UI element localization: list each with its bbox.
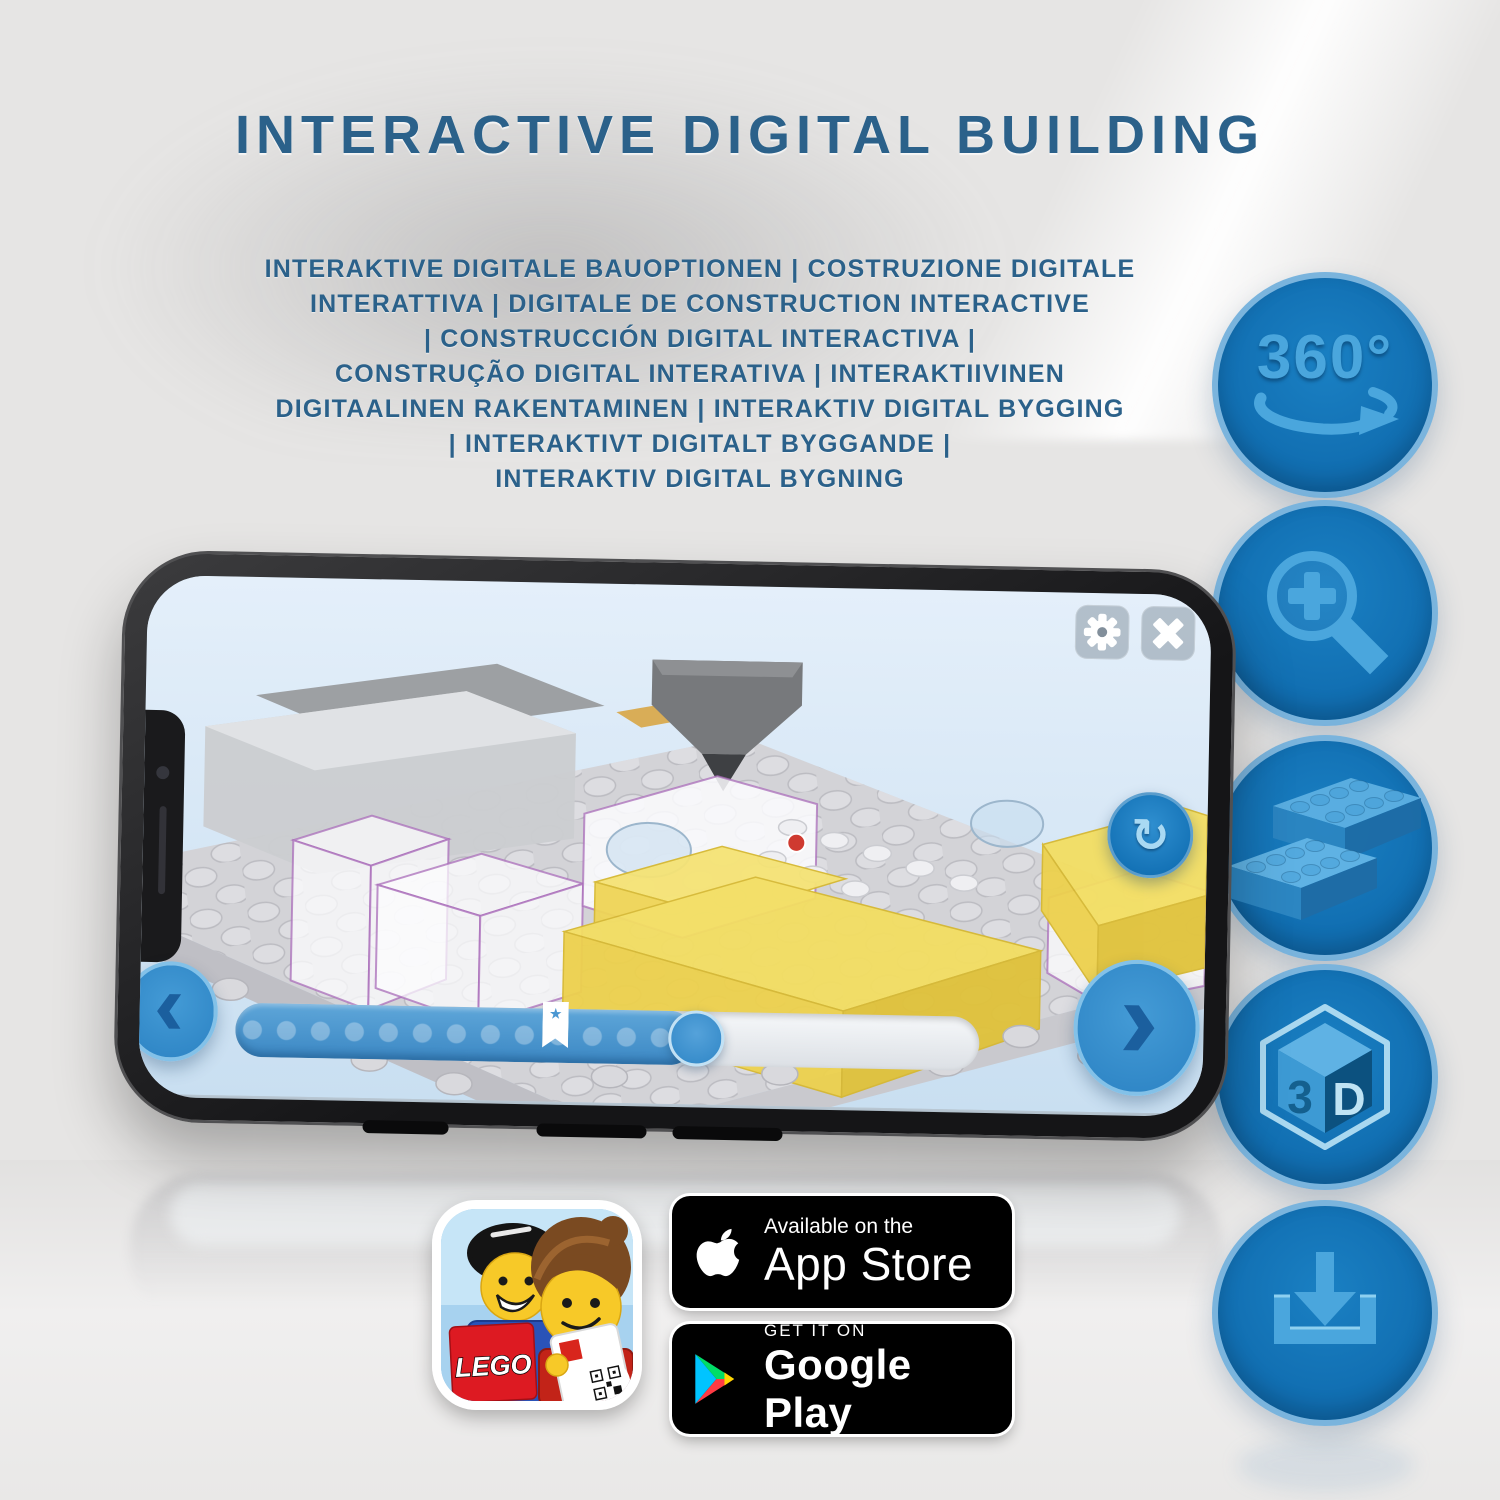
google-play-name: Google Play bbox=[764, 1341, 1012, 1437]
google-play-badge[interactable]: GET IT ON Google Play bbox=[672, 1324, 1012, 1434]
zoom-in-icon bbox=[1250, 538, 1400, 688]
gear-icon bbox=[1082, 612, 1123, 653]
feature-brick bbox=[1212, 735, 1438, 961]
360-label: 360° bbox=[1249, 330, 1401, 386]
settings-button[interactable] bbox=[1075, 605, 1130, 660]
subtitle-block: INTERAKTIVE DIGITALE BAUOPTIONEN | COSTR… bbox=[90, 252, 1310, 497]
progress-thumb[interactable] bbox=[668, 1010, 725, 1067]
lego-app-icon[interactable]: LEGO bbox=[432, 1200, 642, 1410]
subtitle-line: INTERAKTIV DIGITAL BYGNING bbox=[90, 462, 1310, 497]
app-store-name: App Store bbox=[764, 1239, 973, 1289]
subtitle-line: DIGITAALINEN RAKENTAMINEN | INTERAKTIV D… bbox=[90, 392, 1310, 427]
cube-3-label: 3 bbox=[1287, 1071, 1313, 1123]
phone-mockup: ↻ ★ bbox=[113, 549, 1238, 1142]
apple-icon bbox=[672, 1221, 764, 1283]
phone-notch bbox=[141, 710, 186, 963]
marketing-page: INTERACTIVE DIGITAL BUILDING INTERAKTIVE… bbox=[0, 0, 1500, 1500]
chevron-right-icon bbox=[1106, 994, 1167, 1061]
subtitle-line: CONSTRUÇÃO DIGITAL INTERATIVA | INTERAKT… bbox=[90, 357, 1310, 392]
cube-d-label: D bbox=[1332, 1073, 1365, 1125]
camera-icon bbox=[156, 766, 169, 779]
lego-app-artwork: LEGO bbox=[441, 1209, 633, 1401]
3d-cube-icon: 3 D bbox=[1250, 1001, 1400, 1153]
close-button[interactable] bbox=[1141, 606, 1196, 661]
progress-fill bbox=[235, 1003, 697, 1066]
chevron-left-icon bbox=[147, 985, 194, 1038]
page-title: INTERACTIVE DIGITAL BUILDING bbox=[0, 104, 1500, 166]
lego-logo-text: LEGO bbox=[454, 1349, 532, 1383]
brick-icon bbox=[1227, 768, 1423, 928]
app-store-badge[interactable]: Available on the App Store bbox=[672, 1196, 1012, 1308]
phone-side-button bbox=[536, 1123, 646, 1138]
download-icon bbox=[1250, 1238, 1400, 1388]
phone-screen: ↻ ★ bbox=[138, 575, 1212, 1117]
subtitle-line: | INTERAKTIVT DIGITALT BYGGANDE | bbox=[90, 427, 1310, 462]
subtitle-line: INTERATTIVA | DIGITALE DE CONSTRUCTION I… bbox=[90, 287, 1310, 322]
rotate-icon: ↻ bbox=[1131, 812, 1170, 859]
feature-360-rotation: 360° bbox=[1212, 272, 1438, 498]
google-play-tagline: GET IT ON bbox=[764, 1321, 1012, 1341]
feature-zoom bbox=[1212, 500, 1438, 726]
feature-download bbox=[1212, 1200, 1438, 1426]
rotation-arrow-icon bbox=[1249, 386, 1401, 436]
phone-side-button bbox=[672, 1126, 782, 1141]
google-play-icon bbox=[672, 1350, 764, 1408]
close-icon bbox=[1149, 614, 1188, 653]
phone-side-button bbox=[362, 1120, 448, 1135]
app-store-tagline: Available on the bbox=[764, 1215, 973, 1239]
circle-reflection bbox=[1238, 1438, 1414, 1492]
speaker-slot bbox=[158, 806, 167, 894]
subtitle-line: INTERAKTIVE DIGITALE BAUOPTIONEN | COSTR… bbox=[90, 252, 1310, 287]
subtitle-line: | CONSTRUCCIÓN DIGITAL INTERACTIVA | bbox=[90, 322, 1310, 357]
lego-logo: LEGO bbox=[449, 1323, 537, 1401]
feature-3d-view: 3 D bbox=[1212, 964, 1438, 1190]
